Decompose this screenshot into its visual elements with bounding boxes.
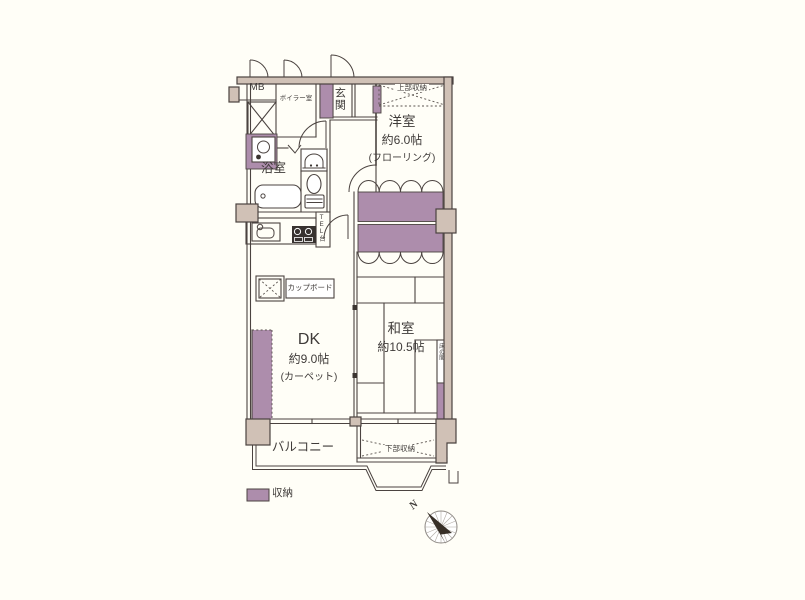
label-dk: DK 約9.0帖 (カーペット) bbox=[281, 331, 338, 383]
label-boiler-room: ボイラー室 bbox=[280, 95, 313, 102]
toilet bbox=[307, 175, 321, 194]
western-room-name: 洋室 bbox=[369, 110, 436, 130]
japanese-room-size: 約10.5帖 bbox=[377, 338, 424, 355]
closet-upper bbox=[358, 192, 443, 222]
legend bbox=[247, 489, 269, 501]
dk-size: 約9.0帖 bbox=[281, 350, 338, 367]
label-western-room: 洋室 約6.0帖 (フローリング) bbox=[369, 110, 436, 164]
label-japanese-room: 和室 約10.5帖 bbox=[377, 317, 424, 355]
western-room-closet-strip bbox=[373, 86, 381, 113]
dk-name: DK bbox=[281, 331, 338, 349]
label-entrance: 玄関 bbox=[333, 87, 345, 111]
label-cupboard: カップボード bbox=[288, 284, 333, 292]
closet-lower bbox=[358, 225, 443, 253]
japanese-room-name: 和室 bbox=[377, 317, 424, 337]
bathtub bbox=[255, 185, 301, 208]
compass bbox=[425, 511, 457, 545]
label-mb: MB bbox=[250, 82, 265, 93]
label-lower-storage: 下部収納 bbox=[383, 445, 417, 453]
label-legend-storage: 収納 bbox=[272, 488, 293, 500]
legend-storage-swatch bbox=[247, 489, 269, 501]
floorplan-page: MB ボイラー室 玄関 上部収納 洋室 約6.0帖 (フローリング) 浴室 TE… bbox=[0, 0, 805, 600]
dk-floor: (カーペット) bbox=[281, 368, 338, 383]
western-room-floor: (フローリング) bbox=[369, 149, 436, 164]
label-balcony: バルコニー bbox=[272, 440, 334, 454]
label-bathroom: 浴室 bbox=[261, 161, 286, 175]
dk-storage-strip bbox=[252, 330, 272, 419]
label-tokonoma: 床の間 bbox=[437, 343, 443, 360]
label-tel-stand: TEL台 bbox=[318, 214, 325, 241]
entrance-door-arc bbox=[331, 55, 354, 78]
western-room-size: 約6.0帖 bbox=[369, 131, 436, 148]
label-upper-storage: 上部収納 bbox=[395, 84, 429, 92]
shoe-cabinet bbox=[320, 84, 333, 118]
